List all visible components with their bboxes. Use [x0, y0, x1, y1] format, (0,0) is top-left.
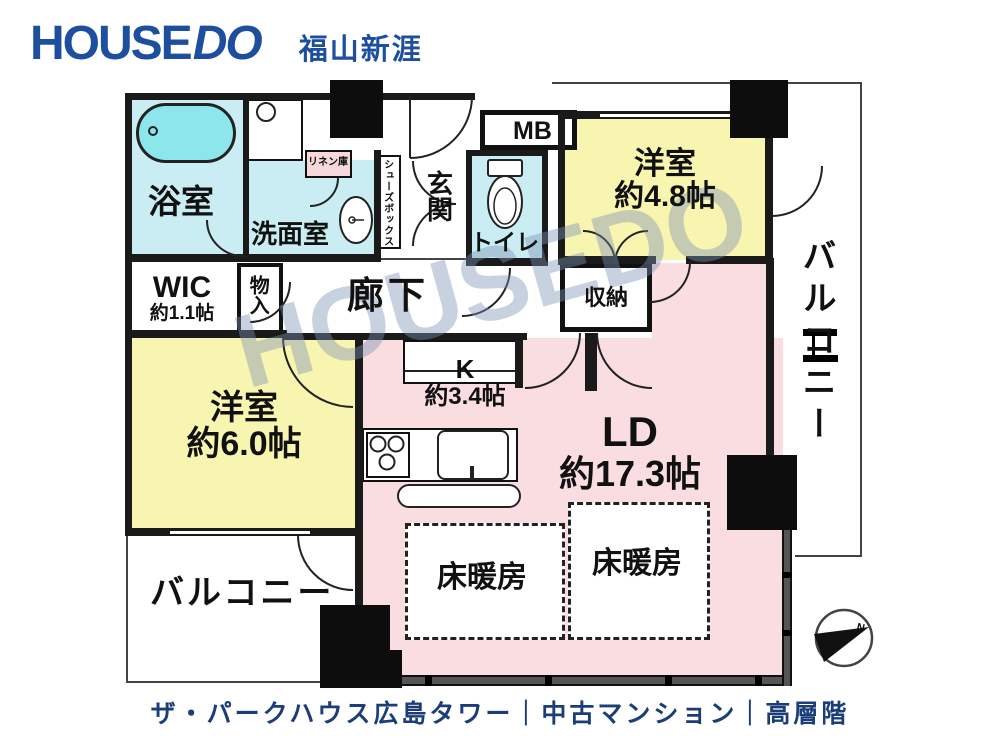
kitchen-size: 約3.4帖: [405, 384, 525, 409]
bedroom1-name: 洋室: [565, 148, 765, 181]
powder-label: 洗面室: [251, 221, 329, 249]
toilet-bowl: [488, 176, 522, 228]
toilet-tank: [488, 160, 522, 176]
closet-double-arc-2: [615, 231, 648, 263]
bedroom2-label: 洋室 約6.0帖: [133, 390, 355, 462]
compass: N: [814, 610, 872, 666]
wic-name: WIC: [132, 272, 232, 304]
powder-small-door-arc: [310, 178, 338, 206]
bedroom1-balcony-door-arc: [772, 166, 822, 216]
floor-heating1-label: 床暖房: [437, 562, 527, 594]
bedroom1-label: 洋室 約4.8帖: [565, 148, 765, 213]
tub-drain: [149, 127, 157, 135]
wic-size: 約1.1帖: [132, 304, 232, 324]
counter-front-bar: [398, 485, 520, 507]
stove-burner-2: [389, 437, 404, 452]
bedroom1-size: 約4.8帖: [565, 181, 765, 213]
ld-door-arc-left: [525, 333, 580, 388]
ld-name: LD: [545, 410, 715, 455]
bath-label: 浴室: [148, 185, 214, 220]
toilet-door-arc: [462, 268, 510, 316]
hallway-label: 廊下: [347, 276, 429, 315]
kitchen-name: K: [405, 356, 525, 384]
closet-double-arc-1: [583, 231, 615, 263]
bedroom2-size: 約6.0帖: [133, 426, 355, 462]
linen-label: リネン庫: [308, 158, 348, 169]
wic-label: WIC 約1.1帖: [132, 272, 232, 324]
stove-burner-1: [371, 437, 386, 452]
stove-burner-3: [380, 455, 395, 470]
floor-heating2-label: 床暖房: [592, 548, 682, 580]
bedroom2-name: 洋室: [133, 390, 355, 426]
ld-size: 約17.3帖: [545, 455, 715, 493]
shoebox-label: シューズボックス: [381, 159, 392, 247]
kitchen-label: K 約3.4帖: [405, 356, 525, 409]
washer-circle: [257, 103, 275, 121]
balcony-bottom-label: バルコニー: [150, 575, 334, 611]
sink-tap: [470, 466, 474, 479]
entrance-label: 玄関: [424, 170, 452, 222]
mb-label: MB: [513, 118, 552, 145]
ld-door-arc-right: [597, 333, 652, 388]
storage-label: 物入: [246, 275, 267, 315]
floorplan-page: HOUSE DO 福山新涯: [0, 0, 1000, 750]
bath-door-arc: [207, 220, 243, 256]
ld-label: LD 約17.3帖: [545, 410, 715, 493]
entry-door-arc: [410, 96, 472, 158]
bedroom1-door-arc: [650, 262, 690, 302]
toilet-label: トイレ: [470, 230, 539, 254]
balcony-right-label: バルコニー: [798, 238, 834, 448]
closet-label: 収納: [584, 286, 628, 309]
